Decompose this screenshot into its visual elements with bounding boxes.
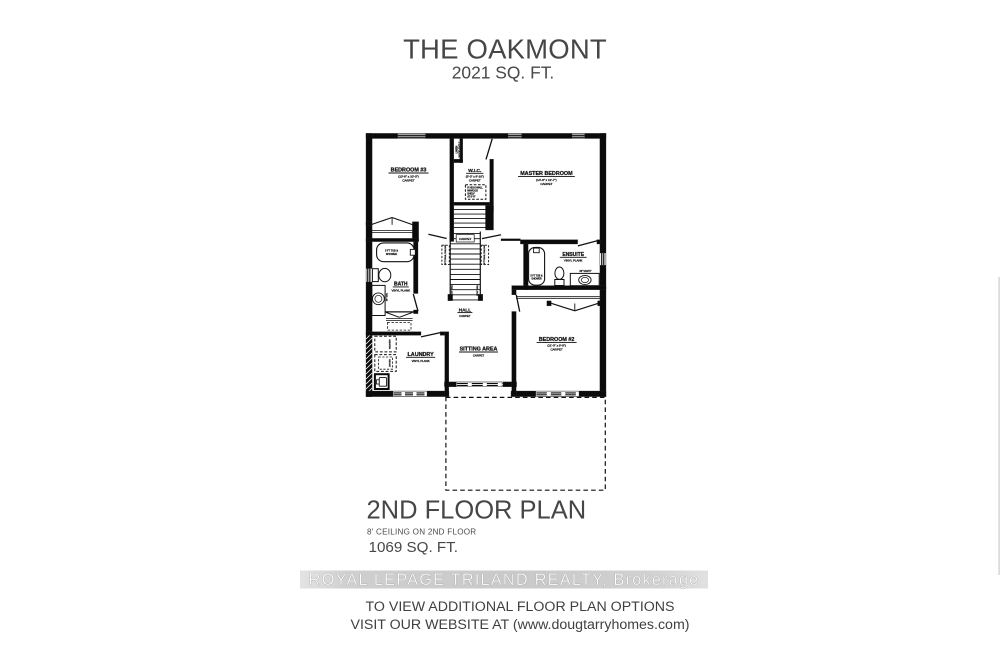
svg-text:HALL: HALL xyxy=(459,307,471,312)
svg-text:WOOD SHELF: WOOD SHELF xyxy=(459,141,461,157)
svg-text:LOW WALL: LOW WALL xyxy=(476,283,479,295)
svg-text:LINEN: LINEN xyxy=(455,146,459,154)
svg-text:AT 6'-8": AT 6'-8" xyxy=(467,196,475,199)
svg-text:CARPET: CARPET xyxy=(540,182,552,186)
svg-text:1069 SQ. FT.: 1069 SQ. FT. xyxy=(369,539,458,556)
svg-text:CARPET: CARPET xyxy=(551,348,563,352)
svg-text:CARPET: CARPET xyxy=(459,314,471,318)
svg-text:VINYL PLANK: VINYL PLANK xyxy=(564,259,583,263)
svg-text:CARPET: CARPET xyxy=(402,179,414,183)
svg-text:VINYL PLANK: VINYL PLANK xyxy=(392,288,411,292)
svg-text:VISIT OUR WEBSITE AT (www.doug: VISIT OUR WEBSITE AT (www.dougtarryhomes… xyxy=(350,617,689,633)
svg-text:SHOWER: SHOWER xyxy=(531,279,542,281)
svg-text:ROYAL LEPAGE TRILAND REALTY, B: ROYAL LEPAGE TRILAND REALTY, Brokerage xyxy=(309,571,700,589)
svg-text:OPTIONAL RAILING: OPTIONAL RAILING xyxy=(483,245,486,266)
svg-text:VINYL PLANK: VINYL PLANK xyxy=(412,359,430,363)
svg-text:36" VANITY: 36" VANITY xyxy=(579,270,592,273)
svg-text:OPTIONAL RAILING: OPTIONAL RAILING xyxy=(444,245,447,266)
svg-text:36" VAN.: 36" VAN. xyxy=(385,292,388,301)
svg-text:CARPET: CARPET xyxy=(473,353,485,357)
svg-text:8' CEILING ON 2ND FLOOR: 8' CEILING ON 2ND FLOOR xyxy=(367,527,476,536)
svg-text:CARPET: CARPET xyxy=(459,237,471,241)
svg-text:SHOWER: SHOWER xyxy=(386,253,397,256)
svg-text:DRYER: DRYER xyxy=(390,359,392,367)
svg-text:WASHER: WASHER xyxy=(389,339,392,349)
svg-text:THE OAKMONT: THE OAKMONT xyxy=(403,34,607,65)
svg-text:5 FT TUB &: 5 FT TUB & xyxy=(530,276,543,278)
svg-text:CARPET: CARPET xyxy=(469,179,481,183)
svg-text:2ND FLOOR PLAN: 2ND FLOOR PLAN xyxy=(367,497,587,525)
svg-text:2021 SQ. FT.: 2021 SQ. FT. xyxy=(452,63,554,83)
svg-text:LOW WALL: LOW WALL xyxy=(451,283,454,295)
svg-text:TO VIEW ADDITIONAL FLOOR PLAN: TO VIEW ADDITIONAL FLOOR PLAN OPTIONS xyxy=(365,599,674,615)
